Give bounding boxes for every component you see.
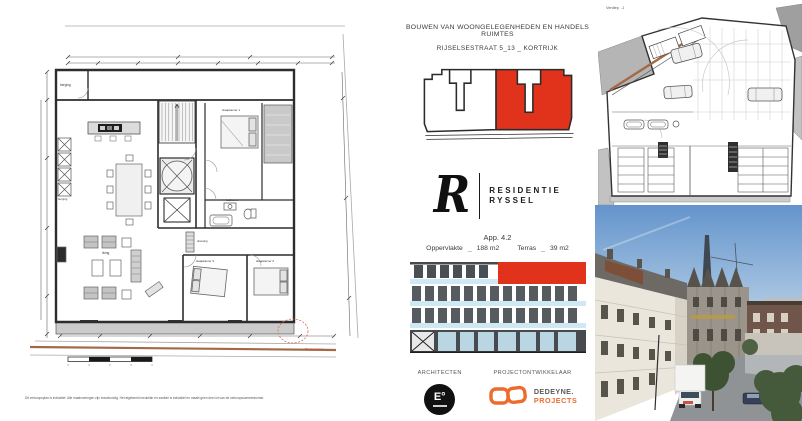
header-line2: RIJSELSESTRAAT 5_13 _ KORTRIJK [395, 45, 600, 52]
ground-floor [410, 330, 586, 353]
apartment-title: App. 4.2 [395, 233, 600, 242]
brand-name-line2: RYSSEL [489, 196, 561, 206]
apartment-floor-plan: berging berging living slaapkamer 1 slaa… [0, 0, 390, 421]
scale-bar [68, 357, 152, 366]
center-column: BOUWEN VAN WOONGELEGENHEDEN EN HANDELS R… [395, 0, 600, 421]
disclaimer-text: Dit verkoopsplan is indicatief. Alle maa… [25, 396, 264, 400]
room-label-bedroom3: slaapkamer 3 [196, 259, 214, 263]
highlight-apartment-block [498, 262, 586, 284]
terrace-value: 39 m2 [550, 245, 569, 252]
basement-floor-plan: Verdiep -1 [598, 0, 802, 205]
footprint-ground-lines [425, 134, 573, 140]
architect-logo-text: E° [434, 392, 446, 403]
footprint-left-unit [424, 70, 496, 132]
developer-logo: DEDEYNE. PROJECTS [488, 384, 578, 408]
tree-small [742, 339, 758, 355]
living-furniture [57, 236, 163, 299]
elevator [160, 158, 194, 222]
delivery-truck [675, 365, 705, 408]
brand-name-line1: RESIDENTIE [489, 186, 561, 196]
facade-elevation [408, 260, 588, 355]
room-label-living: living [102, 251, 109, 255]
brand-logo: R RESIDENTIE RYSSEL [395, 165, 600, 227]
terrace-label: Terras [517, 245, 536, 252]
dining-table [107, 155, 151, 225]
basement-plan-label: Verdiep -1 [606, 6, 624, 10]
surface-separator: _ [468, 245, 472, 252]
street-annotation-label: Rijselsestraat [305, 347, 323, 351]
apartment-areas: Oppervlakte _ 188 m2 Terras _ 39 m2 [395, 245, 600, 252]
developer-name-line1: DEDEYNE. [534, 387, 578, 396]
developer-label: PROJECTONTWIKKELAAR [488, 370, 578, 376]
brand-monogram: R [434, 171, 471, 222]
brand-divider [479, 173, 480, 219]
architect-logo: E° [424, 384, 455, 415]
glasses-icon [488, 384, 530, 408]
room-label-storage-top: berging [60, 83, 71, 87]
room-label-dressing: dressing [197, 239, 208, 243]
architect-logo-bar [433, 405, 447, 407]
surface-label: Oppervlakte [426, 245, 463, 252]
room-label-bathroom: badkamer [226, 198, 239, 202]
footprint-highlight-unit [496, 70, 572, 130]
footprint-diagram [408, 58, 588, 150]
developer-name-line2: PROJECTS [534, 396, 578, 405]
presentation-sheet: berging berging living slaapkamer 1 slaa… [0, 0, 802, 421]
credits-row: ARCHITECTEN E° PROJECTONTWIKKELAAR DEDEY… [395, 370, 600, 415]
architect-label: ARCHITECTEN [418, 370, 462, 376]
room-label-bedroom2: slaapkamer 2 [256, 259, 274, 263]
street-photo [595, 205, 802, 421]
staircase [159, 101, 195, 143]
room-label-storage: berging [58, 197, 68, 201]
terrace-separator: _ [541, 245, 545, 252]
room-label-bedroom1: slaapkamer 1 [222, 108, 240, 112]
street-edge-line [30, 347, 336, 350]
header-line1: BOUWEN VAN WOONGELEGENHEDEN EN HANDELS R… [395, 24, 600, 38]
surface-value: 188 m2 [477, 245, 500, 252]
